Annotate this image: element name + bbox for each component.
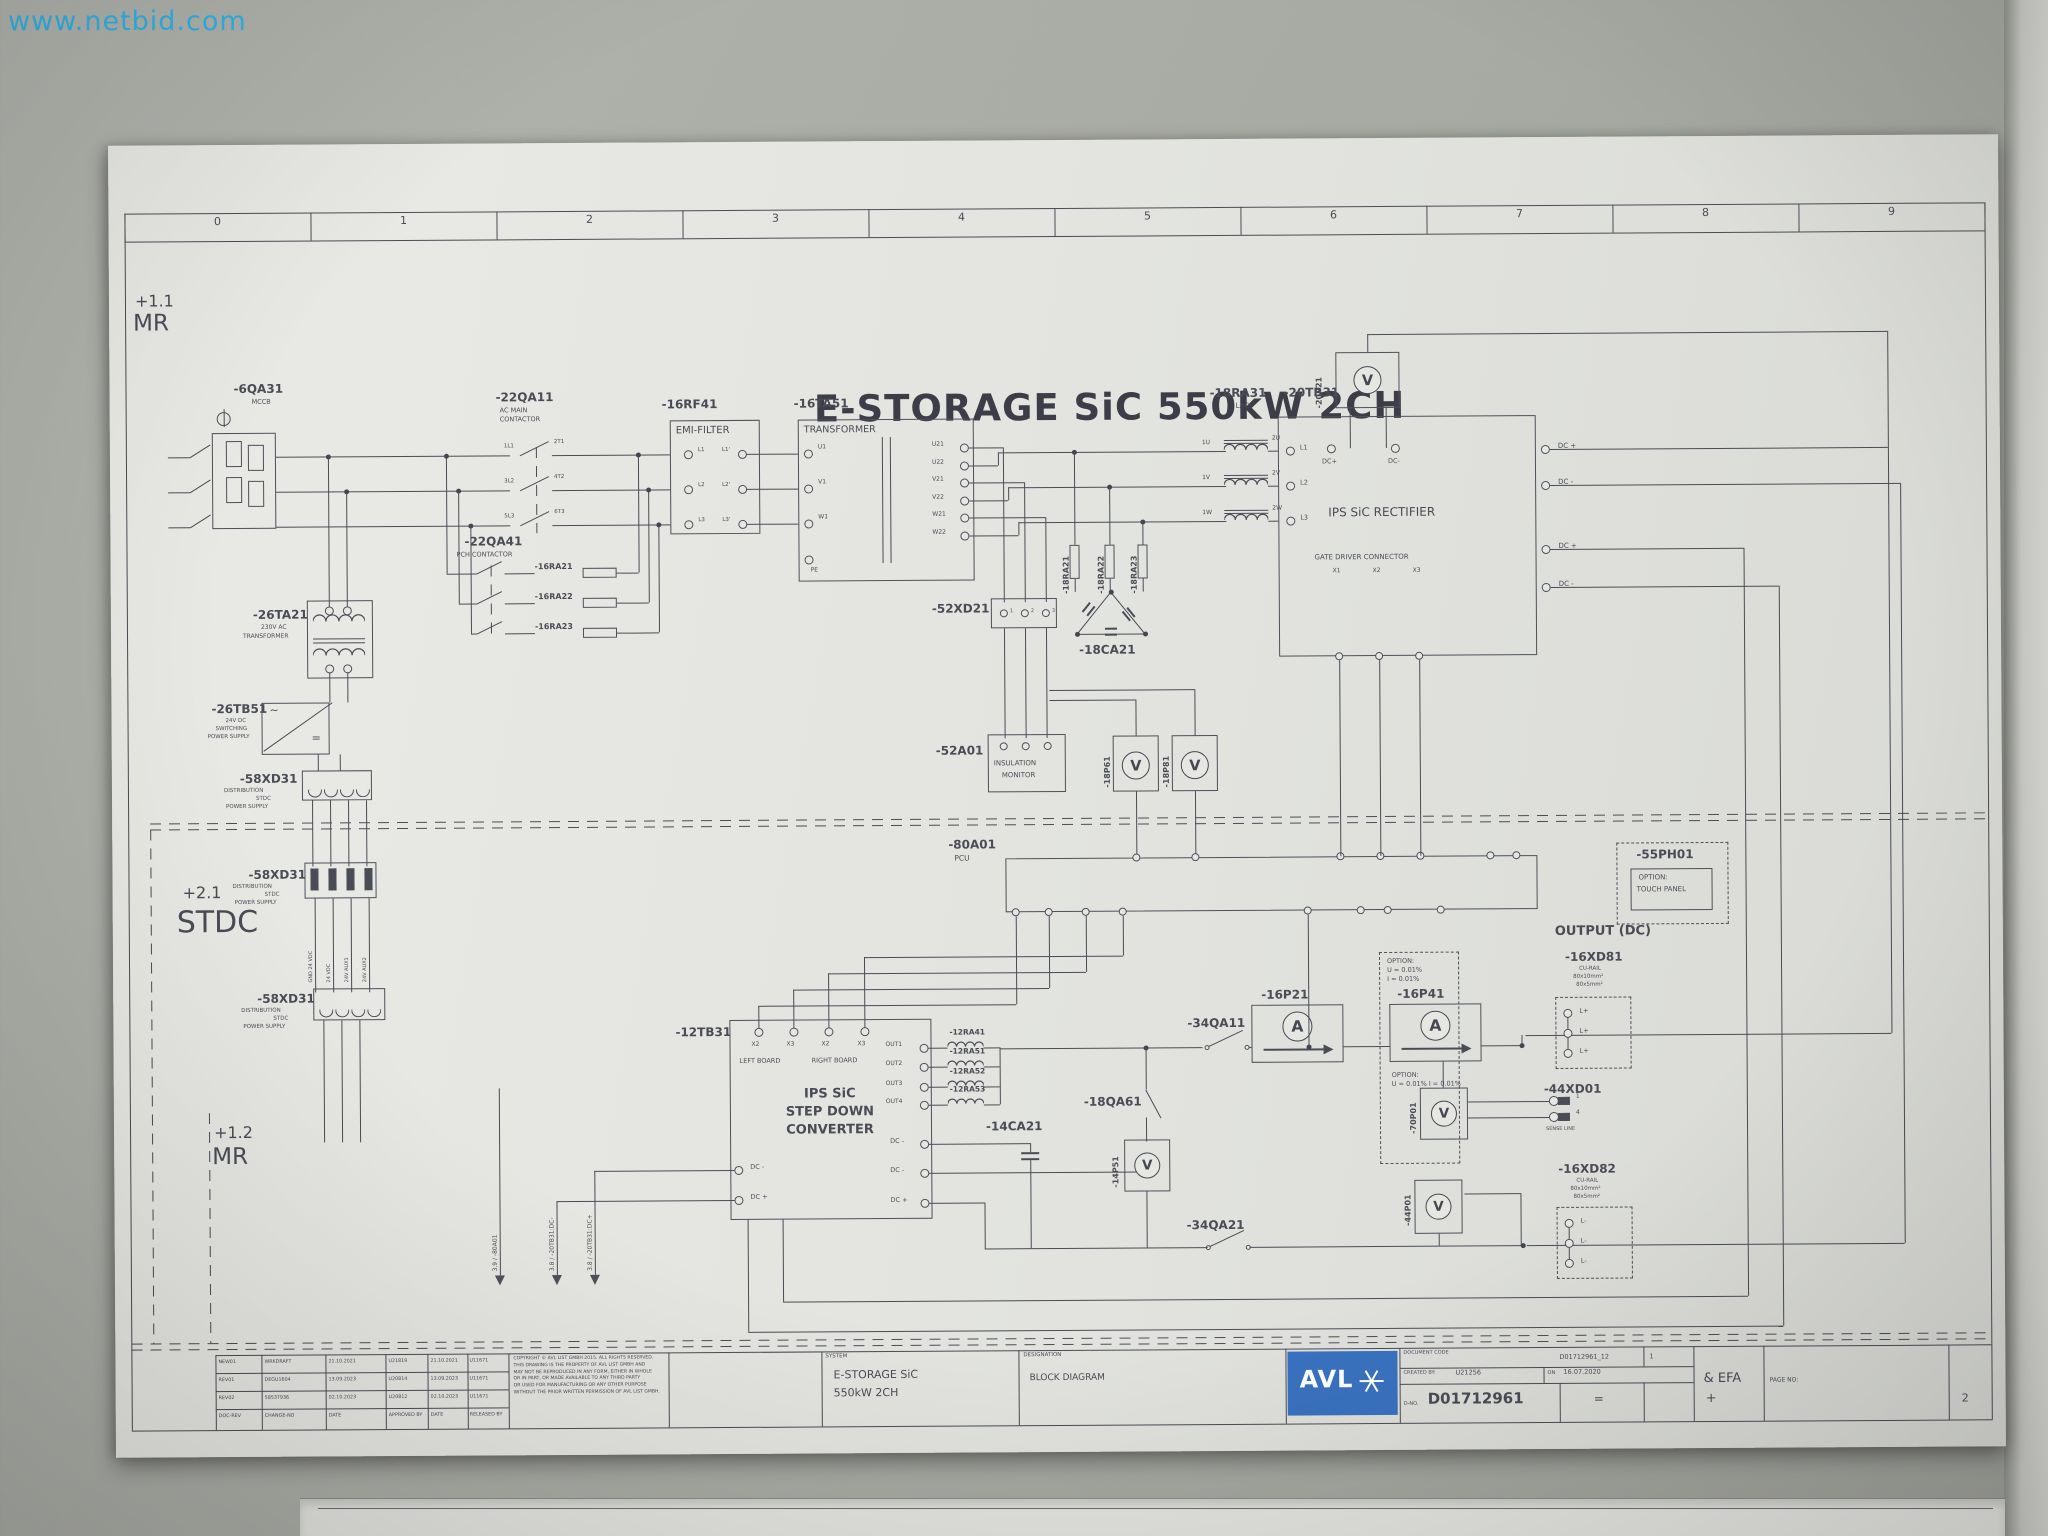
- label: DISTRIBUTION: [241, 1009, 280, 1015]
- tag-80a01: -80A01: [948, 838, 996, 851]
- tag-18p61: -18P61: [1104, 756, 1113, 788]
- label: DISTRIBUTION: [233, 885, 272, 891]
- label: 80x5mm²: [1576, 983, 1603, 989]
- tag-16p41: -16P41: [1397, 988, 1444, 1001]
- transformer-title: TRANSFORMER: [804, 425, 876, 435]
- label: 1V: [1202, 475, 1210, 481]
- revision-cell: WRKDRAFT: [264, 1360, 291, 1365]
- label: X3: [857, 1041, 865, 1047]
- wire: [536, 447, 538, 533]
- label: PCU: [954, 855, 969, 863]
- tag-6qa31: -6QA31: [233, 383, 283, 396]
- wire: [520, 476, 549, 491]
- label: DC +: [750, 1194, 767, 1201]
- terminal: [960, 478, 969, 487]
- column-number: 7: [1426, 208, 1612, 221]
- wire: [984, 1066, 1000, 1067]
- wire: [505, 603, 535, 604]
- column-number: 4: [868, 211, 1054, 224]
- label: L-: [1581, 1258, 1587, 1265]
- titleblock-line: [1643, 1346, 1644, 1366]
- tag-18qa61: -18QA61: [1084, 1095, 1142, 1108]
- tag-16rf41: -16RF41: [662, 398, 718, 411]
- label: CU-RAIL: [1576, 1179, 1598, 1185]
- wire: [1464, 1193, 1520, 1194]
- wire: [446, 456, 448, 574]
- wire: [346, 491, 348, 608]
- revision-cell: U20814: [389, 1377, 408, 1382]
- tag-16xd81: -16XD81: [1565, 951, 1623, 964]
- label: DC -: [750, 1164, 764, 1171]
- system-value-2: 550kW 2CH: [834, 1387, 899, 1399]
- netbid-watermark: www.netbid.com: [8, 6, 247, 37]
- tag-70p01: -70P01: [1410, 1102, 1419, 1134]
- label: POWER SUPPLY: [208, 735, 250, 741]
- label: MCCB: [252, 399, 271, 406]
- label: RIGHT BOARD: [812, 1057, 858, 1064]
- wire: [1888, 447, 1893, 1033]
- rectifier-box: [1278, 415, 1537, 657]
- label: I = 0.01%: [1387, 976, 1419, 983]
- label: 4: [1576, 1110, 1580, 1116]
- tag-16p21: -16P21: [1261, 988, 1308, 1001]
- wire: [1195, 791, 1196, 857]
- wire: [1086, 916, 1087, 972]
- wire: [552, 524, 670, 526]
- converter-title-1: IPS SiC: [770, 1087, 890, 1101]
- wire: [929, 1105, 948, 1106]
- wire: [617, 632, 659, 633]
- label: DC +: [890, 1197, 907, 1204]
- inductor-symbol: [948, 1057, 984, 1066]
- wire: [318, 755, 319, 771]
- terminal: [960, 531, 969, 540]
- frame-tick: [1984, 202, 1985, 230]
- label: POWER SUPPLY: [243, 1025, 285, 1031]
- label: 1W: [1202, 510, 1212, 516]
- wire: [1900, 483, 1906, 1243]
- tag-52a01: -52A01: [936, 744, 984, 757]
- wire: [333, 898, 335, 992]
- wire: [1000, 1047, 1203, 1049]
- wire: [1018, 521, 1226, 523]
- wire: [1003, 447, 1005, 602]
- ammeter-16p41: A: [1420, 1011, 1450, 1041]
- revision-cell: U11671: [470, 1376, 489, 1381]
- terminal: [1563, 1048, 1572, 1057]
- label: 1U: [1202, 440, 1210, 446]
- wire: [1025, 628, 1027, 738]
- revision-cell: U21819: [388, 1359, 407, 1364]
- wire: [1021, 1152, 1039, 1154]
- column-number: 8: [1612, 206, 1798, 219]
- titleblock-line: [1560, 1383, 1561, 1422]
- revision-cell: REV02: [219, 1396, 235, 1401]
- label: V22: [932, 495, 944, 501]
- document-code-rev: 1: [1649, 1353, 1653, 1360]
- wire: [1339, 660, 1341, 856]
- system-value-1: E-STORAGE SiC: [833, 1369, 918, 1381]
- wire: [746, 524, 798, 525]
- label: X3: [786, 1042, 794, 1048]
- wire: [783, 1220, 785, 1302]
- terminal: [960, 513, 969, 522]
- revision-cell: APPROVED BY: [389, 1413, 423, 1418]
- wire: [1779, 586, 1785, 1326]
- wire: [1194, 689, 1195, 735]
- inductor-symbol: [1224, 512, 1268, 521]
- wire: [190, 515, 211, 529]
- terminal: [1564, 1258, 1573, 1267]
- created-by-label: CREATED BY:: [1404, 1371, 1436, 1376]
- label: 3L2: [504, 479, 514, 485]
- output-dc-label: OUTPUT (DC): [1555, 924, 1651, 938]
- titleblock-line: [467, 1354, 468, 1429]
- wire: [1030, 1160, 1032, 1248]
- wire: [617, 573, 639, 574]
- wire: [556, 1201, 557, 1275]
- wire: [447, 574, 477, 575]
- revision-cell: REV01: [219, 1378, 235, 1383]
- wire: [328, 456, 330, 608]
- wire: [150, 818, 1988, 830]
- label: DC-: [1388, 458, 1400, 465]
- terminal: [1486, 851, 1494, 859]
- wire: [1145, 1090, 1161, 1119]
- label: X1: [1333, 568, 1341, 574]
- wire: [131, 1338, 1991, 1351]
- wire: [985, 1247, 1208, 1249]
- wire: [359, 1020, 361, 1142]
- photo-of-block-diagram: { "watermark": "www.netbid.com", "ink": …: [0, 0, 2048, 1536]
- terminal: [959, 461, 968, 470]
- label: X2: [751, 1042, 759, 1048]
- section-name-mr1: MR: [133, 311, 169, 335]
- wire: [1264, 1048, 1324, 1050]
- label: X2: [1373, 568, 1381, 574]
- wire: [168, 527, 190, 528]
- revision-cell: 02.10.2023: [431, 1395, 458, 1400]
- tag-26tb51: -26TB51: [211, 703, 267, 716]
- next-sheet-edge: [300, 1498, 2005, 1536]
- box: [583, 598, 617, 608]
- wire: [150, 812, 1988, 824]
- box: [346, 868, 354, 890]
- wire: [1468, 1101, 1550, 1103]
- wire: [276, 525, 510, 527]
- page-no-label: PAGE NO:: [1770, 1377, 1799, 1383]
- terminal: [804, 555, 813, 564]
- terminal: [1563, 1008, 1572, 1017]
- avl-logo: AVL: [1287, 1351, 1397, 1416]
- terminal: [803, 449, 812, 458]
- revision-cell: DOC-REV: [219, 1414, 241, 1419]
- tag-20p21: -20P21: [1315, 377, 1324, 409]
- wire: [505, 633, 535, 634]
- wire: [783, 1296, 1748, 1303]
- wire: [341, 1020, 343, 1142]
- terminal: [754, 1027, 763, 1036]
- label: TOUCH PANEL: [1637, 886, 1686, 894]
- box: [1558, 1113, 1570, 1121]
- terminal: [734, 1165, 743, 1174]
- ref-80a01: 3.9 / -80A01: [493, 1234, 500, 1271]
- wire: [1379, 660, 1381, 856]
- label: AC MAIN: [500, 407, 528, 414]
- box: [248, 445, 264, 471]
- wire: [458, 491, 460, 604]
- box: [310, 869, 318, 891]
- background-wall: [2004, 0, 2048, 1536]
- box: [226, 477, 242, 503]
- tag-16ra23: -16RA23: [535, 623, 573, 632]
- terminal: [1000, 742, 1008, 750]
- revision-cell: 21.10.2021: [328, 1359, 355, 1364]
- revision-cell: 02.10.2023: [329, 1395, 356, 1400]
- ref-20tb31-dcplus: 3.8 / -20TB31:DC+: [588, 1214, 595, 1270]
- tag-55ph01: -55PH01: [1636, 848, 1693, 861]
- terminal: [1204, 1045, 1209, 1050]
- wire: [168, 457, 190, 458]
- wire: [369, 898, 371, 992]
- label: L2': [722, 483, 730, 489]
- wire: [1074, 452, 1076, 545]
- label: W22: [932, 530, 946, 536]
- tag-58xd31c: -58XD31: [257, 993, 315, 1006]
- wire: [984, 1104, 1000, 1105]
- equals-symbol: =: [1594, 1393, 1604, 1406]
- label: STDC: [256, 797, 271, 803]
- voltmeter-44p01: V: [1425, 1194, 1451, 1220]
- terminal: [1082, 908, 1090, 916]
- tag-20tb31: -20TB31: [1284, 386, 1340, 399]
- voltmeter-14p51: V: [1134, 1152, 1160, 1178]
- label: L1: [1300, 444, 1308, 451]
- label: CONTACTOR: [500, 416, 541, 423]
- label: DC+: [1322, 458, 1337, 465]
- wire: [276, 455, 510, 457]
- titleblock-line: [1543, 1367, 1544, 1383]
- column-number: 1: [310, 214, 496, 227]
- titleblock-line: [216, 1389, 509, 1392]
- wire: [998, 452, 999, 465]
- wire: [323, 1020, 325, 1142]
- titleblock-line: [1763, 1346, 1764, 1421]
- label: SENSE LINE: [1546, 1127, 1575, 1132]
- arrow: [590, 1275, 600, 1285]
- titleblock-line: [216, 1371, 509, 1374]
- titleblock-line: [1018, 1350, 1019, 1425]
- label: 4T2: [554, 475, 564, 481]
- wire: [828, 972, 1086, 975]
- schematic-sheet: E-STORAGE SiC 550kW 2CH 0123456789+1.1MR…: [108, 134, 2006, 1458]
- wire: [1146, 1047, 1147, 1089]
- wire: [929, 1048, 948, 1049]
- label: 1L1: [504, 444, 514, 450]
- label: OPTION:: [1638, 874, 1667, 882]
- wire: [1419, 660, 1421, 856]
- terminal: [1119, 908, 1127, 916]
- tag-12ra51: -12RA51: [950, 1047, 986, 1055]
- wire: [1146, 1117, 1147, 1141]
- junction-dot: [1142, 631, 1147, 636]
- voltmeter-18p81: V: [1181, 751, 1209, 779]
- wire: [1135, 700, 1136, 736]
- revision-cell: 13.09.2023: [329, 1377, 356, 1382]
- wire: [340, 754, 341, 770]
- wire: [556, 1200, 734, 1202]
- wire: [348, 800, 349, 866]
- revision-cell: 21.10.2021: [430, 1359, 457, 1364]
- tag-58xd31a: -58XD31: [240, 773, 298, 786]
- wire: [552, 489, 670, 491]
- label: L3: [1300, 514, 1308, 521]
- wire: [1367, 331, 1887, 335]
- terminal: [1000, 609, 1008, 617]
- rectifier-title: IPS SiC RECTIFIER: [1328, 506, 1435, 519]
- wire: [748, 1326, 1783, 1333]
- label: U1: [818, 444, 826, 450]
- box: [583, 628, 617, 638]
- label: POWER SUPPLY: [226, 805, 268, 811]
- label: 230V AC: [261, 625, 287, 631]
- tag-12ra53: -12RA53: [950, 1085, 986, 1093]
- revision-cell: DATE: [431, 1413, 444, 1418]
- titleblock-line: [325, 1354, 326, 1429]
- titleblock-line: [1644, 1382, 1645, 1421]
- created-on-label: ON: [1548, 1371, 1556, 1376]
- wire: [1024, 482, 1026, 602]
- titleblock-line: [1399, 1348, 1400, 1423]
- tag-18ra23: -18RA23: [1131, 556, 1140, 594]
- terminal: [919, 1062, 928, 1071]
- wire: [329, 672, 330, 702]
- wire: [1743, 548, 1749, 1296]
- copyright-line: OR USED FOR MANUFACTURING OR ANY OTHER P…: [514, 1384, 647, 1390]
- wire: [491, 565, 493, 641]
- revision-cell: RELEASED BY: [470, 1412, 503, 1417]
- revision-cell: CHANGE-NO: [265, 1414, 295, 1419]
- label: 80x5mm²: [1573, 1195, 1600, 1201]
- document-code-value: D01712961_12: [1559, 1354, 1609, 1361]
- box: [583, 568, 617, 578]
- capacitor-symbol: [1105, 628, 1117, 636]
- inductor-symbol: [1224, 477, 1268, 486]
- titleblock-line: [427, 1354, 428, 1429]
- titleblock-line: [1693, 1346, 1694, 1421]
- wire: [132, 1419, 1993, 1431]
- terminal: [1285, 446, 1294, 455]
- wire: [276, 490, 510, 492]
- wire: [476, 561, 502, 574]
- wire: [1550, 483, 1900, 486]
- created-by-value: U21256: [1456, 1369, 1481, 1376]
- wire: [1268, 486, 1278, 487]
- label: OUT2: [886, 1061, 903, 1067]
- label: 24V AUX2: [363, 957, 368, 982]
- wire: [499, 1088, 501, 1275]
- label: OPTION:: [1387, 958, 1414, 965]
- wire: [984, 1202, 985, 1248]
- tag-58xd31b: -58XD31: [248, 869, 306, 882]
- label: GND 24 VDC: [309, 951, 314, 983]
- section-ref-1-1: +1.1: [135, 293, 174, 310]
- label: ~: [269, 705, 278, 717]
- terminal: [684, 520, 693, 529]
- section-ref-1-2: +1.2: [214, 1125, 253, 1142]
- wire: [1030, 1143, 1031, 1152]
- label: =: [312, 732, 321, 744]
- pcu-box: [1005, 855, 1537, 912]
- terminal: [919, 1100, 928, 1109]
- wire: [1018, 522, 1019, 535]
- terminal-strip: [319, 1002, 383, 1021]
- terminal: [1563, 1028, 1572, 1037]
- wire: [459, 604, 477, 605]
- label: TRANSFORMER: [243, 634, 289, 641]
- wire: [351, 898, 353, 992]
- tag-26ta21: -26TA21: [253, 609, 308, 622]
- terminal: [1512, 851, 1520, 859]
- wire: [1208, 1230, 1245, 1248]
- label: U = 0.01%: [1387, 967, 1422, 974]
- terminal: [1540, 444, 1549, 453]
- wire: [1268, 521, 1278, 522]
- column-number: 9: [1798, 205, 1984, 218]
- label: LAC: [1236, 403, 1250, 410]
- arrow: [1324, 1044, 1334, 1054]
- label: L2: [698, 483, 705, 489]
- label: X2: [821, 1041, 829, 1047]
- wire: [1551, 548, 1744, 550]
- tag-18ra21: -18RA21: [1063, 556, 1072, 594]
- label: 1: [1576, 1094, 1580, 1100]
- wire: [1142, 521, 1143, 544]
- wire: [658, 524, 660, 632]
- copyright-line: THIS DRAWING IS THE PROPERTY OF AVL LIST…: [513, 1363, 645, 1369]
- tag-22qa41: -22QA41: [464, 535, 522, 548]
- wire: [648, 489, 650, 602]
- wire: [347, 672, 348, 702]
- wire: [969, 482, 1024, 483]
- terminal: [1044, 742, 1052, 750]
- arrow: [552, 1275, 562, 1285]
- wire: [864, 956, 1123, 959]
- tag-34qa11: -34QA11: [1187, 1017, 1245, 1030]
- tag-12tb31: -12TB31: [675, 1026, 731, 1039]
- label: 24V DC: [226, 719, 247, 725]
- created-on-value: 16.07.2020: [1564, 1369, 1601, 1376]
- label: DISTRIBUTION: [224, 789, 263, 795]
- designation-value: BLOCK DIAGRAM: [1030, 1374, 1105, 1384]
- wire: [998, 451, 1226, 453]
- wire: [1143, 578, 1144, 591]
- wire: [969, 465, 998, 466]
- avl-logo-text: AVL: [1299, 1365, 1353, 1393]
- tag-14ca21: -14CA21: [986, 1120, 1043, 1133]
- tag-16xd82: -16XD82: [1558, 1163, 1616, 1176]
- terminal: [1042, 609, 1050, 617]
- wire: [1468, 1117, 1550, 1119]
- terminal: [1286, 481, 1295, 490]
- terminal: [684, 485, 693, 494]
- wire: [929, 1067, 948, 1068]
- terminal: [1541, 480, 1550, 489]
- wire: [929, 1087, 948, 1088]
- terminal: [683, 450, 692, 459]
- wire: [190, 445, 211, 459]
- titleblock-line: [668, 1352, 669, 1427]
